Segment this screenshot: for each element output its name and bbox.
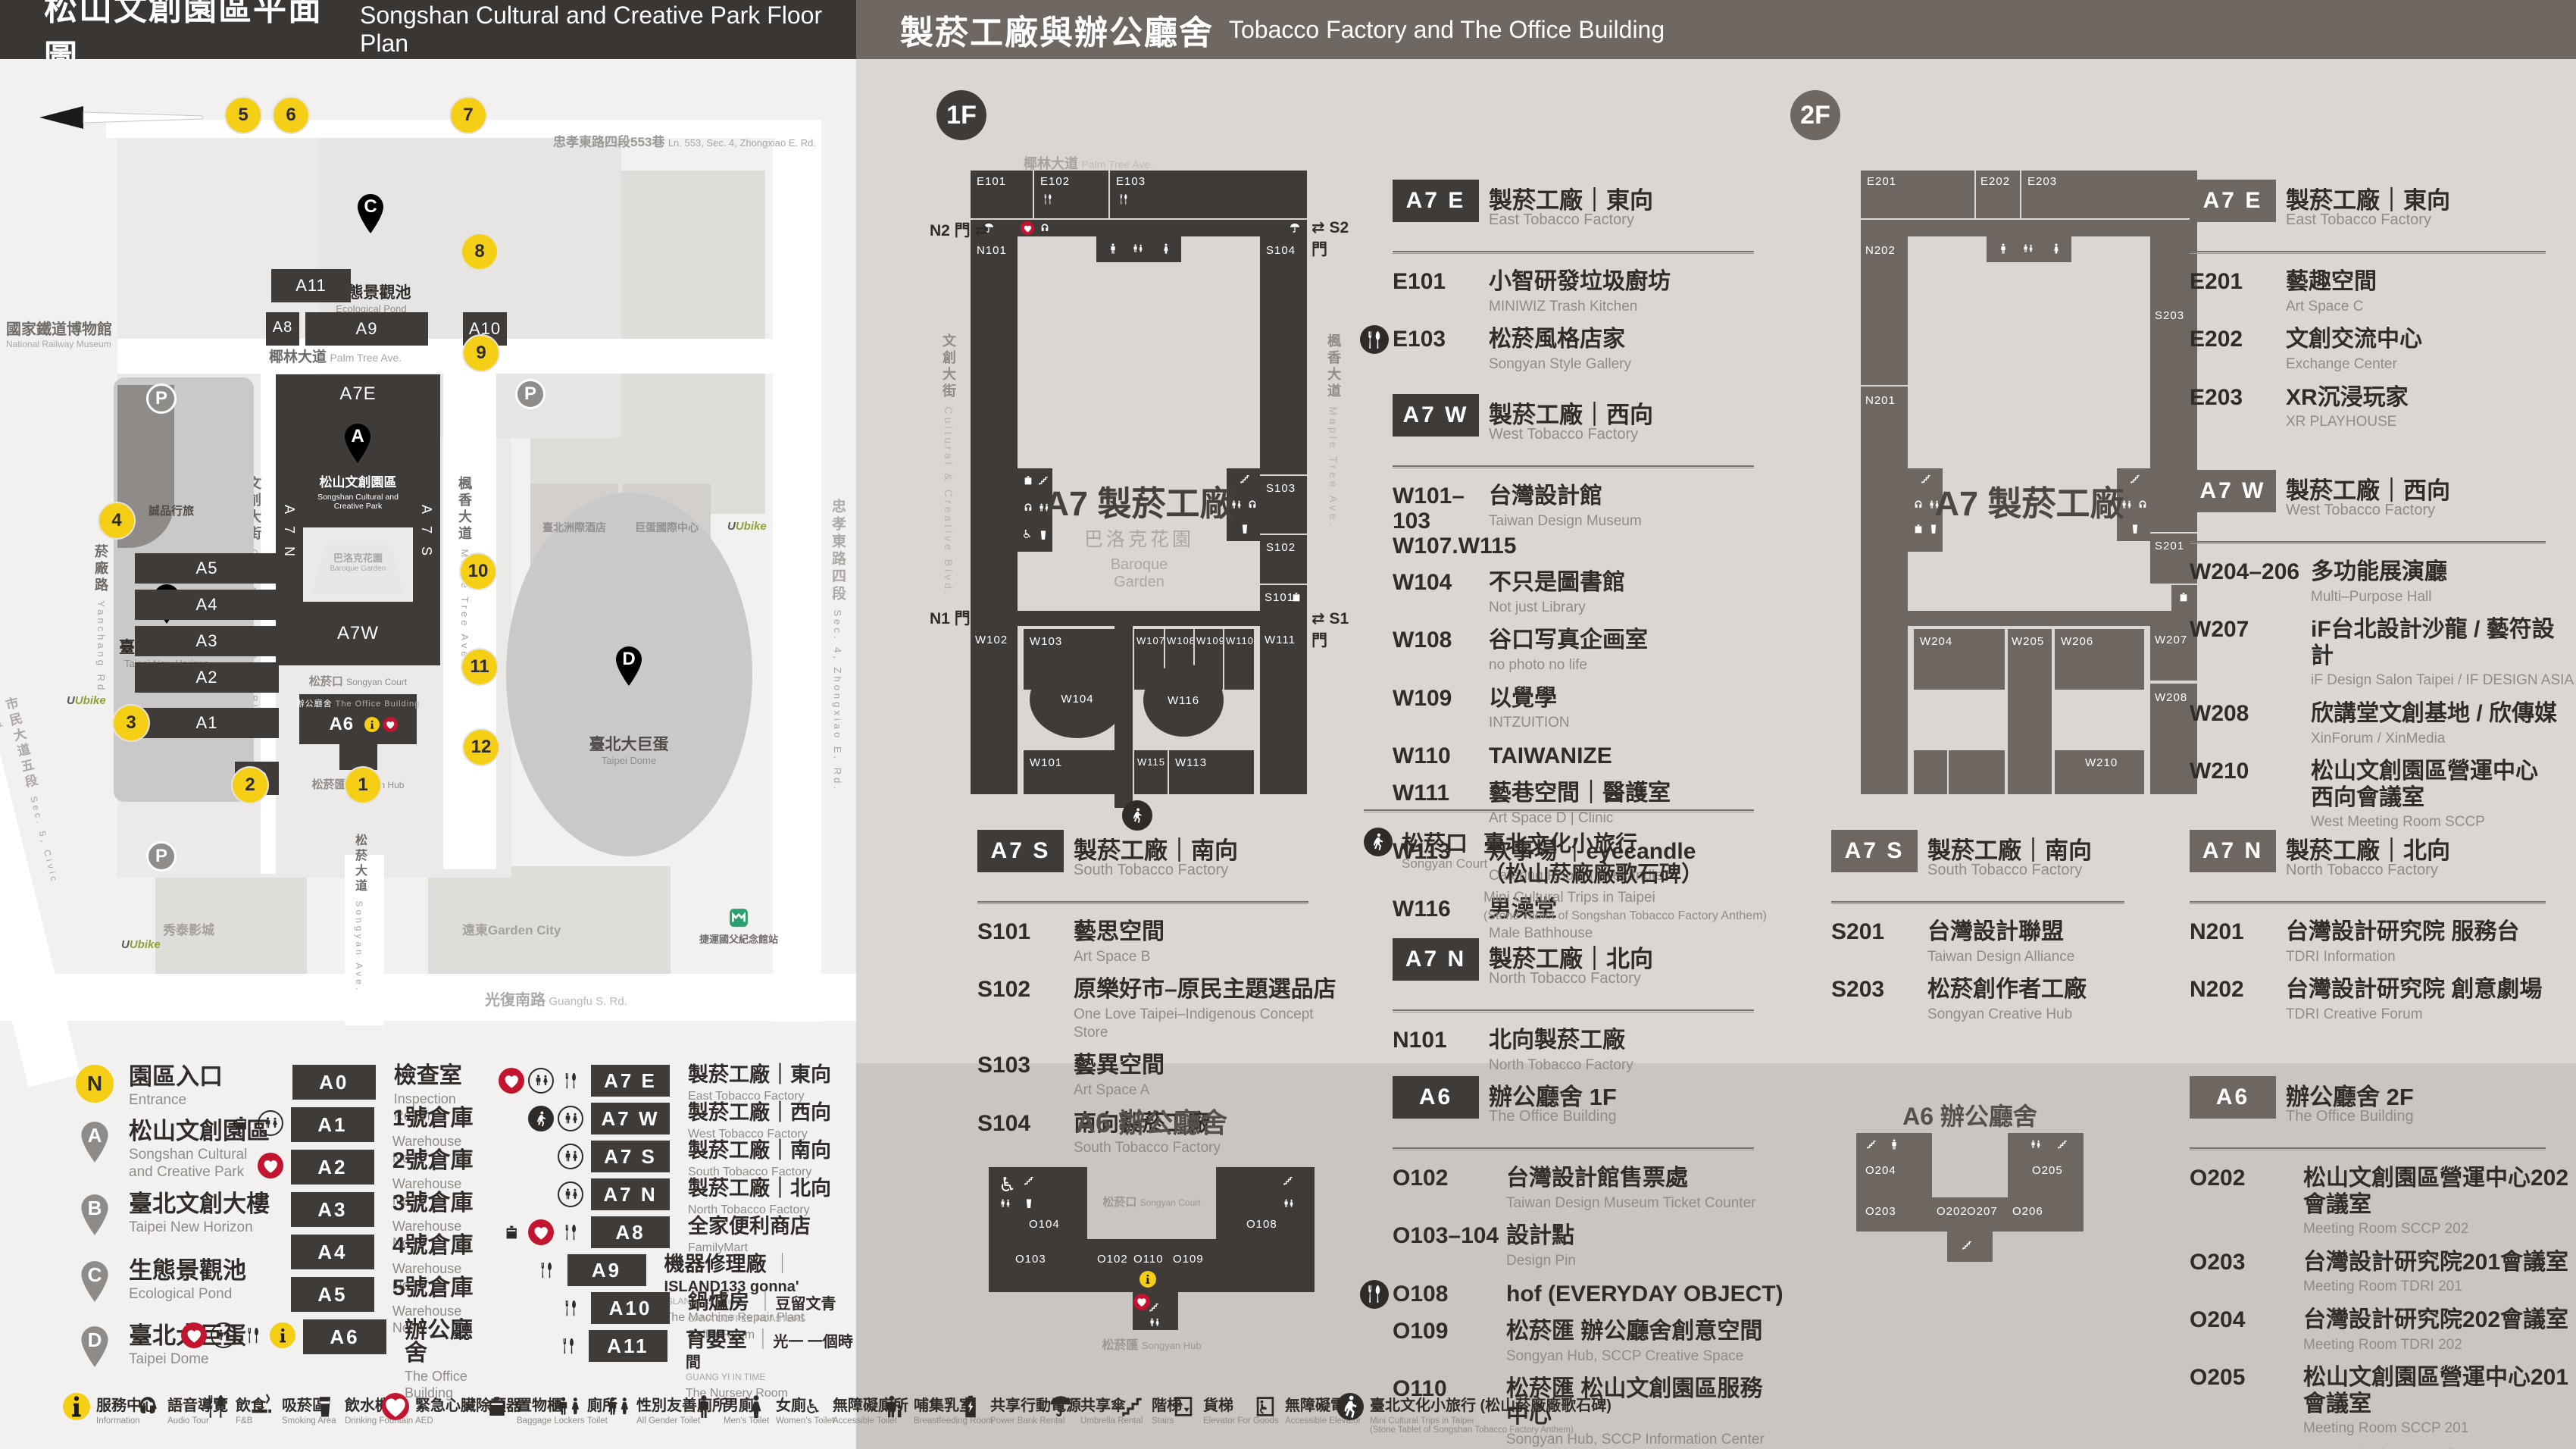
badge-a6: A6 bbox=[1393, 1076, 1479, 1119]
toilet-icon bbox=[1148, 1316, 1160, 1329]
venue-name-zh: 松菸匯 辦公廳舍創意空間 bbox=[1506, 1319, 1784, 1345]
toilet-bump-2f bbox=[1987, 236, 2071, 262]
gate-11: 11 bbox=[462, 649, 497, 684]
list-row: N101北向製菸工廠North Tobacco Factory bbox=[1393, 1028, 1784, 1074]
venue-name-zh: 欣講堂文創基地 / 欣傳媒 bbox=[2311, 701, 2576, 728]
room-w206: W206 bbox=[2055, 629, 2144, 690]
map-pin-icon: C bbox=[76, 1259, 114, 1304]
gate-n2: N2 門 ⇄ bbox=[930, 218, 988, 241]
badge-a7w: A7 W bbox=[1393, 394, 1479, 437]
venue-name-en: Not just Library bbox=[1489, 599, 1784, 617]
room-code: O108 bbox=[1393, 1282, 1506, 1307]
gate-6: 6 bbox=[274, 98, 308, 133]
info-icon bbox=[270, 1322, 295, 1348]
list-row: E202文創交流中心Exchange Center bbox=[2190, 327, 2576, 373]
street-maple: 楓香大道 Maple Tree Ave. bbox=[1324, 333, 1343, 652]
food-icon bbox=[240, 1322, 266, 1348]
room-w116: W116 bbox=[1143, 664, 1224, 737]
toilet-icon bbox=[558, 1181, 583, 1207]
venue-name-zh: 台灣設計研究院 服務台 bbox=[2286, 919, 2576, 946]
section-2f-north: A7 N 製菸工廠｜北向 North Tobacco Factory N201台… bbox=[2157, 830, 2576, 1057]
venue-name-en: iF Design Salon Taipei / IF DESIGN ASIA bbox=[2311, 671, 2576, 690]
badge-A7S: A7 S bbox=[591, 1141, 670, 1172]
venue-name-zh: 藝異空間 bbox=[1074, 1053, 1339, 1079]
room-e103: E103 bbox=[1110, 171, 1307, 218]
venue-name-en: MINIWIZ Trash Kitchen bbox=[1489, 298, 1784, 316]
gate-s2: ⇄ S2 門 bbox=[1311, 218, 1357, 260]
legend-zh: 4號倉庫 bbox=[392, 1235, 485, 1257]
legend-row-A8: A8 全家便利商店 FamilyMart bbox=[485, 1216, 864, 1255]
wheelchair-icon: ♿ bbox=[999, 1175, 1016, 1194]
man-icon bbox=[690, 1393, 717, 1420]
venue-name-zh: 松山文創園區營運中心201會議室 bbox=[2303, 1365, 2576, 1417]
legend-zh: 機器修理廠 ｜ISLAND133 gonna' bbox=[664, 1254, 864, 1295]
block-a2: A2 bbox=[135, 662, 279, 693]
badge-a7s: A7 S bbox=[977, 830, 1064, 872]
venue-name-en: no photo no life bbox=[1489, 656, 1784, 674]
section-1f-west: A7 W 製菸工廠｜西向 West Tobacco Factory W101–1… bbox=[1360, 394, 1784, 818]
room-code: W210 bbox=[2190, 759, 2311, 784]
badge-A7N: A7 N bbox=[591, 1178, 670, 1210]
venue-name-zh: 小智研發垃圾廚坊 bbox=[1489, 269, 1784, 296]
list-row: W207iF台北設計沙龍 / 藝符設計iF Design Salon Taipe… bbox=[2190, 617, 2576, 690]
badge-a6-2f: A6 bbox=[2190, 1076, 2276, 1119]
venue-name-en: Meeting Room SCCP 201 bbox=[2303, 1419, 2576, 1438]
info-icon bbox=[1140, 1271, 1156, 1288]
woman-icon bbox=[2050, 243, 2062, 255]
room-w210: W210 bbox=[2055, 750, 2144, 794]
corridor-south bbox=[971, 611, 1307, 626]
legend-zh: 製菸工廠｜西向 bbox=[688, 1103, 831, 1123]
legend-zh: 製菸工廠｜南向 bbox=[688, 1141, 831, 1161]
corridor-south-2f bbox=[1861, 611, 2197, 626]
room-code: N202 bbox=[2190, 977, 2286, 1002]
badge-A1: A1 bbox=[291, 1107, 374, 1142]
block-a4: A4 bbox=[135, 590, 279, 620]
food-icon bbox=[1360, 325, 1389, 354]
guangfu-label: 光復南路 Guangfu S. Rd. bbox=[485, 987, 627, 1009]
room-code: E201 bbox=[2190, 269, 2286, 294]
legend-zh: 製菸工廠｜北向 bbox=[688, 1178, 831, 1199]
women-toilet-icon bbox=[1160, 243, 1172, 255]
umbrella-icon bbox=[1047, 1393, 1074, 1420]
badge-a7n: A7 N bbox=[1393, 938, 1479, 981]
room-code: S201 bbox=[1831, 919, 1927, 944]
venue-name-zh: 台灣設計研究院201會議室 bbox=[2303, 1250, 2576, 1276]
room-code: E203 bbox=[2190, 385, 2286, 410]
block-a6: 辦公廳舍 The Office Building A6 bbox=[299, 694, 417, 744]
baroque-label: 巴洛克花園 Baroque Garden bbox=[303, 550, 413, 573]
block-a7e: A7E bbox=[276, 374, 440, 414]
water-icon bbox=[311, 1393, 339, 1420]
liftw-icon bbox=[1252, 1393, 1279, 1420]
legend-zh: 1號倉庫 bbox=[392, 1107, 485, 1130]
legend-zh: 辦公廳舍 bbox=[405, 1319, 485, 1365]
list-row: W110TAIWANIZE bbox=[1393, 743, 1784, 770]
room-code: S101 bbox=[977, 919, 1074, 944]
park-name-label: 松山文創園區 Songshan Cultural and Creative Pa… bbox=[295, 471, 420, 511]
room-code: S203 bbox=[1831, 977, 1927, 1002]
ubike-label: UUbike bbox=[727, 520, 767, 533]
food-icon bbox=[558, 1068, 583, 1094]
room-w101: W101 bbox=[1024, 750, 1131, 794]
aed-icon bbox=[1133, 1294, 1150, 1310]
venue-name-en: TDRI Information bbox=[2286, 948, 2576, 966]
toilet-icon bbox=[554, 1393, 581, 1420]
block-a1: A1 bbox=[135, 708, 279, 738]
venue-name-en: Art Space C bbox=[2286, 298, 2576, 316]
room-code: O103–104 bbox=[1393, 1223, 1506, 1248]
room-e101: E101 bbox=[971, 171, 1033, 218]
legend-row-A7N: A7 N 製菸工廠｜北向 North Tobacco Factory bbox=[485, 1178, 864, 1217]
parking-icon: P bbox=[146, 383, 177, 414]
toilet-icon bbox=[999, 1197, 1011, 1210]
room-code: O204 bbox=[2190, 1307, 2303, 1332]
toilet-bump-north bbox=[1096, 236, 1181, 262]
gate-2: 2 bbox=[233, 768, 267, 803]
block-a5: A5 bbox=[135, 553, 279, 584]
gate-12: 12 bbox=[464, 730, 499, 765]
gate-9: 9 bbox=[464, 336, 499, 371]
aed-icon bbox=[181, 1322, 207, 1348]
stairs-icon bbox=[1282, 1175, 1294, 1187]
room-w111: W111 bbox=[1260, 626, 1307, 794]
road-right bbox=[773, 120, 821, 1022]
gate-3: 3 bbox=[114, 706, 148, 740]
room-w113: W113 bbox=[1169, 750, 1254, 794]
list-row: W204–206多功能展演廳Multi–Purpose Hall bbox=[2190, 559, 2576, 606]
corridor-north-2f bbox=[1861, 220, 2197, 236]
venue-name-zh: iF台北設計沙龍 / 藝符設計 bbox=[2311, 617, 2576, 669]
info-icon bbox=[364, 717, 380, 732]
room-code: W101–103W107.W115 bbox=[1393, 484, 1489, 559]
rooms-w-low-left bbox=[1914, 750, 2005, 794]
north-arrow-icon bbox=[39, 106, 206, 129]
list-row: O109松菸匯 辦公廳舍創意空間Songyan Hub, SCCP Creati… bbox=[1393, 1319, 1784, 1365]
venue-name-zh: 北向製菸工廠 bbox=[1489, 1028, 1784, 1054]
toilet-icon bbox=[1131, 243, 1143, 255]
venue-name-en: Songyan Style Gallery bbox=[1489, 355, 1784, 374]
a7-factory-label: A7 製菸工廠 bbox=[933, 476, 1346, 525]
gate-4: 4 bbox=[99, 503, 134, 538]
venue-name-zh: 台灣設計館 bbox=[1489, 484, 1784, 510]
songyan-ave-label: 松菸大道 Songyan Ave. bbox=[350, 834, 368, 1016]
map-pin-icon: D bbox=[76, 1324, 114, 1369]
venue-name-en: Exchange Center bbox=[2286, 355, 2576, 374]
info-icon bbox=[63, 1393, 90, 1420]
venue-name-zh: 松菸匯 松山文創園區服務中心 bbox=[1506, 1376, 1784, 1429]
toilet-icon bbox=[558, 1106, 583, 1131]
room-s104: S104 bbox=[1260, 236, 1307, 474]
woman-icon bbox=[742, 1393, 770, 1420]
floor-2f-badge: 2F bbox=[1790, 90, 1840, 140]
lane553-label: 忠孝東路四段553巷 Ln. 553, Sec. 4, Zhongxiao E.… bbox=[553, 131, 816, 150]
food-icon bbox=[1118, 193, 1130, 205]
a6-plan-2f: A6 辦公廳舍 O204 O205 O203 O202 O207 O206 bbox=[1841, 1084, 2099, 1281]
list-row: N202台灣設計研究院 創意劇場TDRI Creative Forum bbox=[2190, 977, 2576, 1023]
palm-ave-label: 椰林大道 Palm Tree Ave. bbox=[269, 346, 402, 366]
venue-name-zh: XR沉浸玩家 bbox=[2286, 385, 2576, 412]
list-row: E103松菸風格店家Songyan Style Gallery bbox=[1393, 327, 1784, 373]
block-a8: A8 bbox=[266, 312, 299, 346]
badge-A5: A5 bbox=[291, 1277, 374, 1312]
food-icon bbox=[1360, 1280, 1389, 1309]
mrt-logo-icon bbox=[729, 908, 749, 928]
venue-name-en: XinForum / XinMedia bbox=[2311, 730, 2576, 748]
legend-row-A7S: A7 S 製菸工廠｜南向 South Tobacco Factory bbox=[485, 1141, 864, 1179]
locker-icon bbox=[483, 1393, 511, 1420]
toilet-icon bbox=[258, 1110, 283, 1136]
floor-plan-poster: 松山文創園區平面圖 Songshan Cultural and Creative… bbox=[0, 0, 2576, 1449]
aed-icon bbox=[528, 1219, 554, 1245]
legend-row-A7W: A7 W 製菸工廠｜西向 West Tobacco Factory bbox=[485, 1103, 864, 1141]
room-code: O109 bbox=[1393, 1319, 1506, 1344]
venue-name-zh: 松菸風格店家 bbox=[1489, 327, 1784, 353]
food-icon bbox=[555, 1333, 581, 1359]
smoke-icon bbox=[249, 1393, 276, 1420]
venue-name-en: West Meeting Room SCCP bbox=[2311, 813, 2576, 831]
room-code: S102 bbox=[977, 977, 1074, 1002]
room-w102: W102 bbox=[971, 626, 1018, 794]
block-a7w: A7W bbox=[276, 602, 440, 665]
gate-5: 5 bbox=[226, 98, 261, 133]
baby-icon bbox=[880, 1393, 908, 1420]
parking-icon: P bbox=[515, 379, 546, 409]
venue-name-zh: 松菸創作者工廠 bbox=[1927, 977, 2155, 1003]
legend-zh: 5號倉庫 bbox=[392, 1277, 485, 1300]
section-2f-west: A7 W 製菸工廠｜西向 West Tobacco Factory W204–2… bbox=[2157, 470, 2576, 803]
audio-tour-icon bbox=[1039, 222, 1051, 234]
pin-d: D bbox=[611, 644, 647, 688]
list-row: N201台灣設計研究院 服務台TDRI Information bbox=[2190, 919, 2576, 965]
badge-A9: A9 bbox=[567, 1254, 646, 1286]
food-icon bbox=[534, 1257, 560, 1283]
venue-name-en: Songyan Creative Hub bbox=[1927, 1006, 2155, 1024]
block-a6-stub bbox=[339, 744, 377, 770]
list-row: W208欣講堂文創基地 / 欣傳媒XinForum / XinMedia bbox=[2190, 701, 2576, 747]
venue-name-zh: 谷口写真企画室 bbox=[1489, 627, 1784, 654]
court-walker-icon bbox=[1122, 800, 1152, 831]
gate-8: 8 bbox=[462, 234, 497, 269]
hotel-ic-label: 臺北洲際酒店 bbox=[532, 520, 617, 535]
badge-a7n-2f: A7 N bbox=[2190, 830, 2276, 872]
room-code: O102 bbox=[1393, 1166, 1506, 1191]
battery-icon bbox=[957, 1393, 984, 1420]
list-row: W210松山文創園區營運中心西向會議室West Meeting Room SCC… bbox=[2190, 759, 2576, 831]
stairs-icon bbox=[1023, 1175, 1035, 1187]
badge-A7E: A7 E bbox=[591, 1065, 670, 1097]
mrt-label: 捷運國父紀念館站 bbox=[682, 908, 796, 946]
list-row: O102台灣設計館售票處Taiwan Design Museum Ticket … bbox=[1393, 1166, 1784, 1212]
list-row: W104不只是圖書館Not just Library bbox=[1393, 570, 1784, 616]
room-w104: W104 bbox=[1030, 661, 1125, 738]
page-title-en: Songshan Cultural and Creative Park Floo… bbox=[360, 2, 856, 58]
venue-name-en: Meeting Room TDRI 201 bbox=[2303, 1278, 2576, 1296]
park-map: 國家鐵道博物館 National Railway Museum 忠孝東路四段55… bbox=[0, 59, 856, 1059]
legend-blocks: A0 檢查室 Inspection Room A1 1號倉庫 Warehouse… bbox=[197, 1065, 485, 1368]
wheelchair-icon: ♿ bbox=[799, 1393, 827, 1420]
venue-name-zh: 以覺學 bbox=[1489, 686, 1784, 712]
entrance-icon: N bbox=[76, 1065, 114, 1103]
list-row: O204台灣設計研究院202會議室Meeting Room TDRI 202 bbox=[2190, 1307, 2576, 1354]
toilet-icon bbox=[603, 1393, 630, 1420]
venue-name-en: North Tobacco Factory bbox=[1489, 1056, 1784, 1075]
stairs-icon bbox=[1865, 1138, 1877, 1150]
venue-name-zh: 設計點 bbox=[1506, 1223, 1784, 1250]
gate-10: 10 bbox=[461, 554, 496, 589]
room-e201: E201 bbox=[1861, 171, 1974, 218]
legend-zh: 製菸工廠｜東向 bbox=[688, 1065, 831, 1085]
venue-name-en: Taiwan Design Alliance bbox=[1927, 948, 2155, 966]
header-right: 製菸工廠與辦公廳舍 Tobacco Factory and The Office… bbox=[856, 0, 2576, 59]
a6-plan-1f: A6 辦公廳舍 ♿ 松菸口 Songyan Court O104 O108 O1… bbox=[985, 1080, 1318, 1353]
room-code: W104 bbox=[1393, 570, 1489, 595]
stairs-icon bbox=[2056, 1138, 2068, 1150]
aed-icon bbox=[258, 1153, 283, 1178]
list-row: S102原樂好市–原民主題選品店One Love Taipei–Indigeno… bbox=[977, 977, 1339, 1041]
walker-icon bbox=[528, 1106, 554, 1131]
legend-row-A7E: A7 E 製菸工廠｜東向 East Tobacco Factory bbox=[485, 1065, 864, 1103]
list-row: W108谷口写真企画室no photo no life bbox=[1393, 627, 1784, 674]
zhongxiao-label: 忠孝東路四段 Sec. 4, Zhongxiao E. Rd. bbox=[827, 499, 848, 893]
room-code: O110 bbox=[1393, 1376, 1506, 1401]
venue-name-en: XR PLAYHOUSE bbox=[2286, 413, 2576, 431]
legend-zh: 3號倉庫 bbox=[392, 1192, 485, 1215]
venue-name-en: Taiwan Design Museum bbox=[1489, 512, 1784, 530]
badge-A7W: A7 W bbox=[591, 1103, 670, 1134]
locker-icon bbox=[228, 1110, 254, 1136]
toilet-icon bbox=[2029, 1138, 2041, 1150]
venue-name-en: Taiwan Design Museum Ticket Counter bbox=[1506, 1194, 1784, 1213]
venue-name-zh: 藝趣空間 bbox=[2286, 269, 2576, 296]
toilet-icon bbox=[528, 1068, 554, 1094]
venue-name-en: Songyan Hub, SCCP Creative Space bbox=[1506, 1347, 1784, 1366]
list-row: E201藝趣空間Art Space C bbox=[2190, 269, 2576, 315]
venue-name-zh: 台灣設計館售票處 bbox=[1506, 1166, 1784, 1192]
railway-museum-label: 國家鐵道博物館 National Railway Museum bbox=[6, 317, 120, 349]
section-1f-south: A7 S 製菸工廠｜南向 South Tobacco Factory S101藝… bbox=[945, 830, 1339, 1057]
dome-label: 臺北大巨蛋 Taipei Dome bbox=[561, 732, 697, 766]
badge-A4: A4 bbox=[291, 1235, 374, 1269]
room-code: E101 bbox=[1393, 269, 1489, 294]
section-1f-east: A7 E 製菸工廠｜東向 East Tobacco Factory E101小智… bbox=[1360, 180, 1784, 392]
aed-icon bbox=[383, 717, 398, 732]
toilet-icon bbox=[1282, 1197, 1294, 1210]
list-row: O202松山文創園區營運中心202會議室Meeting Room SCCP 20… bbox=[2190, 1166, 2576, 1238]
man-icon bbox=[1888, 1138, 1900, 1150]
room-code: W110 bbox=[1393, 743, 1489, 768]
room-w115: W115 bbox=[1134, 750, 1168, 794]
badge-A2: A2 bbox=[291, 1150, 374, 1185]
eslite-hotel-label: 誠品行旅 bbox=[148, 502, 194, 518]
man-icon bbox=[1997, 243, 2009, 255]
food-icon bbox=[558, 1219, 583, 1245]
venue-name-en: Design Pin bbox=[1506, 1252, 1784, 1270]
badge-a7s-2f: A7 S bbox=[1831, 830, 1918, 872]
map-pin-icon: B bbox=[76, 1192, 114, 1238]
ubike-label: UUbike bbox=[121, 938, 161, 951]
venue-name-zh: TAIWANIZE bbox=[1489, 743, 1784, 770]
aed-icon bbox=[1021, 221, 1034, 235]
walker-icon bbox=[1336, 1393, 1364, 1420]
room-code: O202 bbox=[2190, 1166, 2303, 1191]
songyan-court-entry: 松菸口 Songyan Court 臺北文化小旅行 （松山菸廠廠歌石碑） Min… bbox=[1360, 809, 1784, 938]
legend-zh: 2號倉庫 bbox=[392, 1150, 485, 1172]
aed-icon bbox=[499, 1068, 524, 1094]
map-pin-icon: A bbox=[76, 1119, 114, 1165]
legend-zh: 全家便利商店 bbox=[688, 1216, 811, 1237]
lift-icon bbox=[1170, 1393, 1197, 1420]
food-icon bbox=[1042, 193, 1054, 205]
badge-A8: A8 bbox=[591, 1216, 670, 1248]
list-row: O203台灣設計研究院201會議室Meeting Room TDRI 201 bbox=[2190, 1250, 2576, 1296]
venue-name-en: INTZUITION bbox=[1489, 714, 1784, 732]
block-a3: A3 bbox=[135, 626, 279, 656]
venue-name-zh: 文創交流中心 bbox=[2286, 327, 2576, 353]
venue-name-zh: 多功能展演廳 bbox=[2311, 559, 2576, 586]
arm-west-low-2f bbox=[1861, 626, 1908, 794]
venue-name-en: Art Space B bbox=[1074, 948, 1339, 966]
venue-name-en: Multi–Purpose Hall bbox=[2311, 588, 2576, 606]
gate-1: 1 bbox=[345, 768, 380, 803]
room-e202: E202 bbox=[1976, 171, 2020, 218]
venue-name-zh: 藝巷空間｜醫護室 bbox=[1489, 781, 1784, 807]
list-row: S201台灣設計聯盟Taiwan Design Alliance bbox=[1831, 919, 2155, 965]
list-row: E203XR沉浸玩家XR PLAYHOUSE bbox=[2190, 385, 2576, 431]
badge-A11: A11 bbox=[589, 1330, 667, 1362]
venue-name-en: Songyan Hub, SCCP Information Center bbox=[1506, 1431, 1784, 1449]
badge-A10: A10 bbox=[591, 1292, 670, 1324]
list-row: W101–103W107.W115台灣設計館Taiwan Design Muse… bbox=[1393, 484, 1784, 559]
room-w204: W204 bbox=[1914, 629, 2005, 690]
pin-c: C bbox=[352, 192, 389, 236]
venue-name-zh: 藝思空間 bbox=[1074, 919, 1339, 946]
list-row: S101藝思空間Art Space B bbox=[977, 919, 1339, 965]
section-a6-2f: A6 辦公廳舍 2F The Office Building O202松山文創園… bbox=[2157, 1076, 2576, 1440]
section-title-zh: 製菸工廠與辦公廳舍 bbox=[900, 5, 1214, 54]
legend-row-A6: A6 辦公廳舍 The Office Building bbox=[197, 1319, 485, 1401]
legend-zh: 鍋爐房 ｜豆留文青 bbox=[688, 1292, 836, 1313]
street-ccblvd: 文創大街 Cultural & Creative Blvd. bbox=[939, 333, 958, 652]
badge-A0: A0 bbox=[292, 1065, 376, 1100]
room-code: W108 bbox=[1393, 627, 1489, 653]
baroque-garden-label: 巴洛克花園 Baroque Garden bbox=[933, 524, 1346, 591]
list-row: W109以覺學INTZUITION bbox=[1393, 686, 1784, 732]
venue-name-zh: 原樂好市–原民主題選品店 bbox=[1074, 977, 1339, 1003]
list-row: O108hof (EVERYDAY OBJECT) bbox=[1393, 1282, 1784, 1308]
room-code: E202 bbox=[2190, 327, 2286, 352]
list-row: O103–104設計點Design Pin bbox=[1393, 1223, 1784, 1269]
toilet-icon bbox=[211, 1322, 236, 1348]
room-code: W109 bbox=[1393, 686, 1489, 711]
songyan-court-label: 松菸口 Songyan Court bbox=[288, 673, 428, 689]
stairs-icon bbox=[1961, 1239, 1973, 1251]
venue-name-zh: 不只是圖書館 bbox=[1489, 570, 1784, 596]
locker-icon bbox=[499, 1219, 524, 1245]
section-1f-north: A7 N 製菸工廠｜北向 North Tobacco Factory N101北… bbox=[1360, 938, 1784, 1067]
floor-plan-1f: 椰林大道 Palm Tree Ave. E101 E102 E103 N101 … bbox=[933, 152, 1357, 826]
venue-name-zh: hof (EVERYDAY OBJECT) bbox=[1506, 1282, 1784, 1308]
room-w205: W205 bbox=[2008, 629, 2052, 794]
water-icon bbox=[1023, 1197, 1035, 1210]
ubike-label: UUbike bbox=[67, 694, 106, 707]
venue-name-zh: 台灣設計研究院202會議室 bbox=[2303, 1307, 2576, 1334]
room-code: W207 bbox=[2190, 617, 2311, 642]
venue-name-zh: 松山文創園區營運中心西向會議室 bbox=[2311, 759, 2576, 811]
room-code: O203 bbox=[2190, 1250, 2303, 1275]
legend-blocks2: A7 E 製菸工廠｜東向 East Tobacco Factory A7 W 製… bbox=[485, 1065, 864, 1368]
toilet-icon bbox=[558, 1144, 583, 1169]
